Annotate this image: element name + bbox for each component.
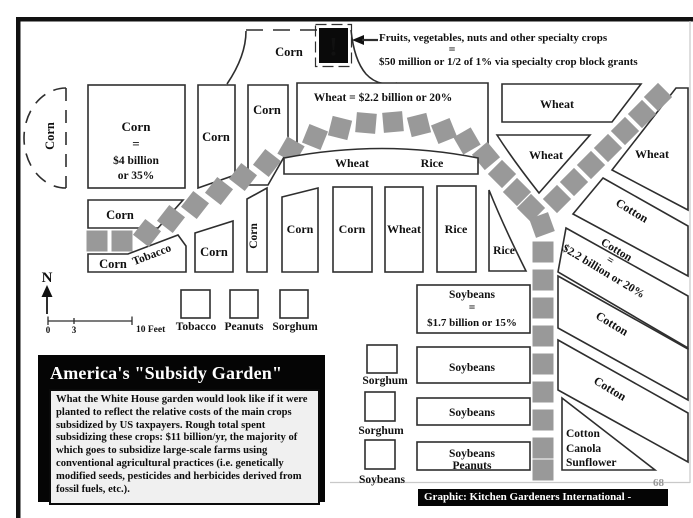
legend-sorghum-label: Sorghum	[272, 321, 318, 333]
bed-sorghum-square-2	[365, 392, 395, 421]
legend-square-peanuts	[230, 290, 258, 318]
path-square	[112, 231, 133, 252]
bed-soybeans-main-label: Soybeans	[449, 289, 496, 301]
exclamation-glyph: !	[329, 33, 338, 62]
compass-north-label: N	[42, 270, 53, 286]
bed-row-corn1-label: Corn	[287, 222, 314, 236]
bed-soybeans-peanuts-label1: Soybeans	[449, 448, 496, 460]
strip-wheat-label: Wheat	[335, 156, 369, 170]
path-square	[577, 151, 605, 179]
bed-corn-pentagon-label: Corn	[253, 103, 281, 117]
bed-corn-main-value: $4 billion	[113, 154, 159, 167]
bed-cotton-canola-label2: Canola	[566, 443, 601, 455]
bed-wheat-triangle-mid-label: Wheat	[529, 148, 563, 162]
path-square	[533, 410, 554, 431]
scale-ten-feet-label: 10 Feet	[136, 325, 166, 335]
path-square	[533, 438, 554, 459]
bed-soybeans-main-equals: =	[469, 302, 476, 314]
north-arrow-icon	[42, 285, 53, 314]
path-square	[181, 191, 209, 219]
legend-square-tobacco	[181, 290, 210, 318]
bed-corn-main-equals: =	[132, 136, 139, 151]
bed-soybeans-square	[365, 440, 395, 469]
path-square	[533, 382, 554, 403]
scale-bar	[48, 317, 132, 326]
bed-wheat-top-right-label: Wheat	[540, 97, 574, 111]
path-square	[560, 168, 588, 196]
bed-corn-vertical-label: Corn	[248, 223, 260, 249]
bed-soybeans-square-label: Soybeans	[359, 474, 406, 486]
strip-rice-label: Rice	[421, 156, 444, 170]
subsidy-garden-diagram: Corn Corn = $4 billion or 35% Corn Corn …	[0, 0, 693, 518]
bed-corn-arc-label: Corn	[43, 122, 57, 150]
bed-soybeans-peanuts-label2: Peanuts	[453, 460, 493, 472]
path-square	[355, 112, 377, 134]
bed-sorghum-square-1-label: Sorghum	[362, 375, 408, 387]
diagram-description: What the White House garden would look l…	[49, 389, 320, 505]
bed-corn-main-label: Corn	[122, 119, 152, 134]
path-square	[543, 185, 571, 213]
bed-corn-small-label: Corn	[200, 245, 228, 259]
bed-soybeans-3-label: Soybeans	[449, 407, 496, 419]
bed-corn-plaza	[227, 30, 397, 84]
path-square	[533, 460, 554, 481]
bed-soybeans-main-value: $1.7 billion or 15%	[427, 317, 517, 329]
bed-corn-tall-label: Corn	[202, 130, 230, 144]
bed-soybeans-2-label: Soybeans	[449, 362, 496, 374]
page-number: 68	[653, 477, 664, 489]
path-square	[594, 134, 622, 162]
bed-cotton-canola-label3: Sunflower	[566, 457, 616, 469]
legend-peanuts-label: Peanuts	[225, 321, 265, 333]
annotation-equals: =	[449, 42, 456, 56]
annotation-line1: Fruits, vegetables, nuts and other speci…	[379, 32, 608, 44]
bed-row-corn2-label: Corn	[339, 222, 366, 236]
credit-bar: Graphic: Kitchen Gardeners International…	[418, 489, 668, 506]
bed-rice-curve-label: Rice	[493, 245, 515, 257]
annotation-line2: $50 million or 1/2 of 1% via specialty c…	[379, 56, 638, 68]
path-square	[533, 326, 554, 347]
path-square	[533, 270, 554, 291]
legend-tobacco-label: Tobacco	[176, 321, 217, 333]
bed-wheat-main-label: Wheat = $2.2 billion or 20%	[314, 91, 453, 104]
bed-wheat-rice-strip	[284, 149, 478, 175]
diagram-title: America's "Subsidy Garden"	[38, 355, 325, 384]
bed-sorghum-square-2-label: Sorghum	[358, 425, 404, 437]
annotation-arrow-icon	[352, 35, 378, 45]
bed-corn-left-row-label: Corn	[106, 208, 134, 222]
bed-cotton-canola-label1: Cotton	[566, 428, 600, 440]
path-square	[533, 354, 554, 375]
bed-corn-plaza-label: Corn	[275, 45, 303, 59]
path-square	[87, 231, 108, 252]
scale-zero-label: 0	[46, 325, 51, 335]
path-square	[382, 111, 404, 133]
bed-corn-tobacco-corn-label: Corn	[99, 257, 127, 271]
path-square	[533, 298, 554, 319]
bed-sorghum-square-1	[367, 345, 397, 373]
legend-square-sorghum	[280, 290, 308, 318]
path-square	[533, 242, 554, 263]
bed-wheat-triangle-right-label: Wheat	[635, 147, 669, 161]
bed-row-wheat-label: Wheat	[387, 222, 421, 236]
scale-three-label: 3	[72, 325, 77, 335]
title-box: America's "Subsidy Garden" What the Whit…	[38, 355, 325, 502]
bed-corn-main-percent: or 35%	[118, 170, 155, 182]
bed-row-rice-label: Rice	[445, 222, 468, 236]
